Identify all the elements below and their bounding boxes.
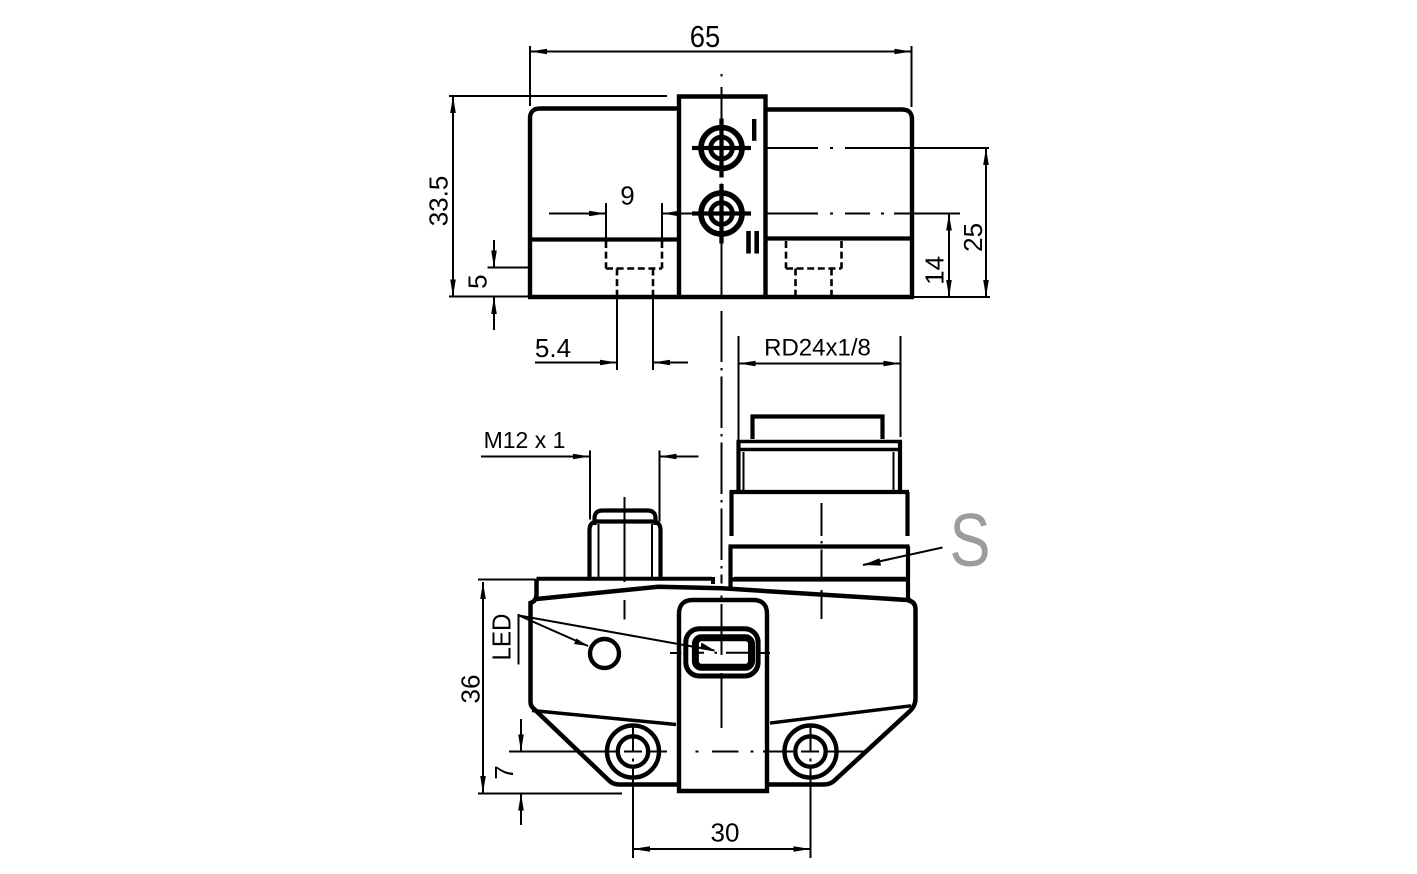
svg-text:M12 x 1: M12 x 1 (484, 427, 566, 453)
svg-text:25: 25 (958, 223, 988, 252)
svg-text:36: 36 (456, 675, 486, 704)
svg-text:9: 9 (620, 180, 634, 210)
svg-text:33.5: 33.5 (424, 176, 454, 227)
svg-text:LED: LED (487, 614, 517, 661)
svg-text:5.4: 5.4 (535, 333, 571, 363)
svg-text:14: 14 (920, 256, 950, 285)
svg-text:S: S (950, 498, 991, 582)
svg-text:5: 5 (463, 274, 493, 288)
svg-text:30: 30 (711, 817, 740, 847)
svg-text:7: 7 (489, 765, 519, 779)
svg-text:65: 65 (690, 19, 721, 54)
svg-text:RD24x1/8: RD24x1/8 (764, 335, 871, 362)
